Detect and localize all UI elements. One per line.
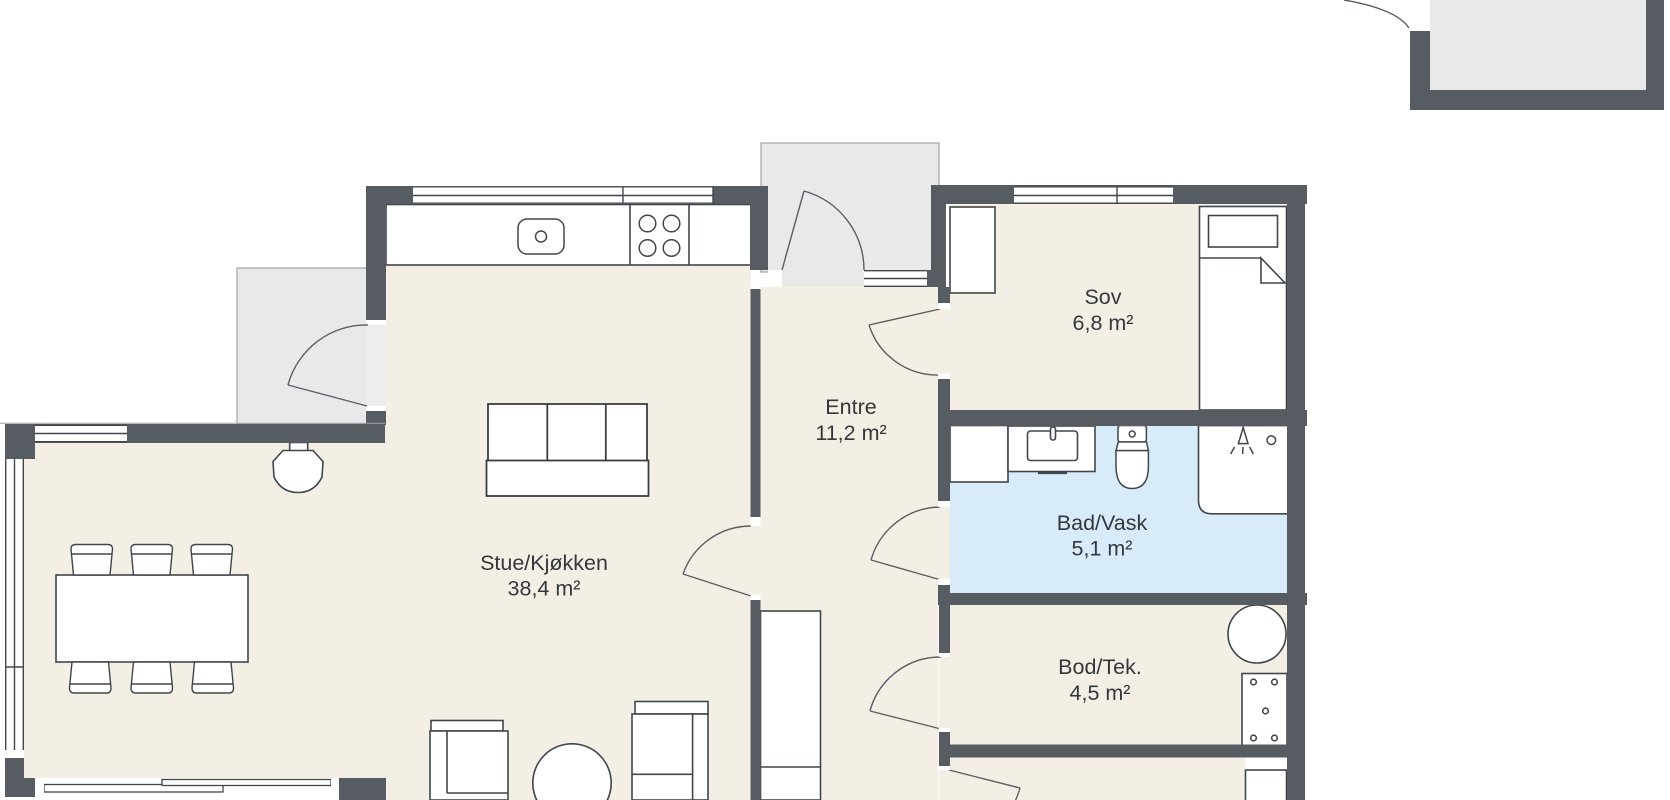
svg-text:38,4 m²: 38,4 m² bbox=[508, 577, 581, 601]
svg-text:6,8 m²: 6,8 m² bbox=[1073, 311, 1134, 335]
svg-text:Entre: Entre bbox=[825, 395, 876, 419]
svg-text:11,2 m²: 11,2 m² bbox=[815, 421, 886, 445]
svg-text:4,5 m²: 4,5 m² bbox=[1070, 681, 1131, 705]
svg-text:Bad/Vask: Bad/Vask bbox=[1057, 511, 1148, 535]
svg-text:Stue/Kjøkken: Stue/Kjøkken bbox=[480, 551, 608, 575]
svg-text:Bod/Tek.: Bod/Tek. bbox=[1058, 655, 1142, 679]
svg-text:5,1 m²: 5,1 m² bbox=[1072, 537, 1133, 561]
svg-text:Sov: Sov bbox=[1084, 285, 1121, 309]
